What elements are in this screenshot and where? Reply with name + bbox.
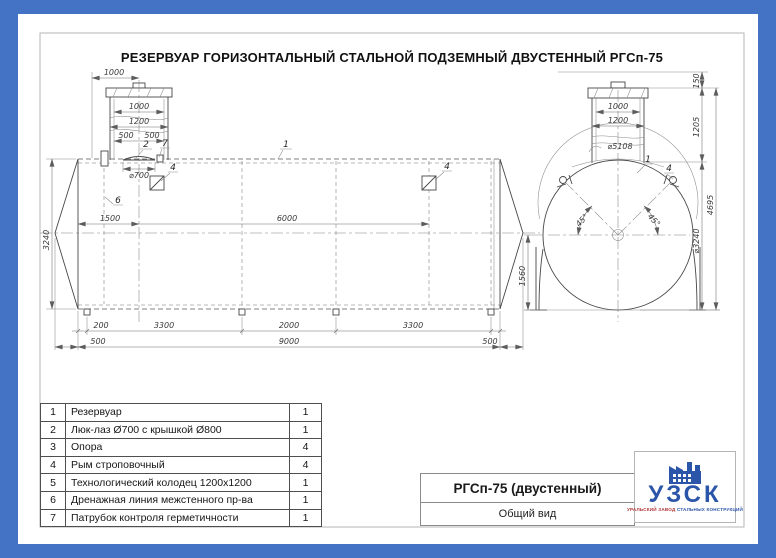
model-name: РГСп-75 (двустенный) xyxy=(421,474,634,503)
drawing-sheet-page: { "title": "РЕЗЕРВУАР ГОРИЗОНТАЛЬНЫЙ СТА… xyxy=(0,0,776,558)
dim-support-span-1: 3300 xyxy=(154,321,174,330)
dim-shell-diameter: ⌀3240 xyxy=(692,228,701,253)
svg-text:7: 7 xyxy=(162,139,168,149)
part-number: 5 xyxy=(41,474,66,492)
dim-end-to-well: 1500 xyxy=(100,214,120,223)
part-qty: 1 xyxy=(290,491,322,509)
callout-rym-2: 4 xyxy=(435,162,452,180)
logo-tagline-right: СТАЛЬНЫХ КОНСТРУКЦИЙ xyxy=(677,507,743,512)
dim-neck-depth: 1205 xyxy=(692,117,701,137)
side-view: 1000 1200 500 500 1000 ⌀700 3240 1500 60… xyxy=(40,68,540,350)
dim-arc-5108: ⌀5108 xyxy=(607,142,632,151)
table-row: 6 Дренажная линия межстенного пр-ва 1 xyxy=(41,491,322,509)
part-qty: 1 xyxy=(290,421,322,439)
uzsk-logo: УЗСК УРАЛЬСКИЙ ЗАВОД СТАЛЬНЫХ КОНСТРУКЦИ… xyxy=(634,451,736,523)
drain-pipe xyxy=(101,151,108,166)
part-name: Дренажная линия межстенного пр-ва xyxy=(66,491,290,509)
parts-table: 1 Резервуар 1 2 Люк-лаз Ø700 с крышкой Ø… xyxy=(40,403,322,527)
logo-tagline: УРАЛЬСКИЙ ЗАВОД СТАЛЬНЫХ КОНСТРУКЦИЙ xyxy=(627,507,743,512)
dim-well-outer: 1200 xyxy=(129,117,149,126)
table-row: 2 Люк-лаз Ø700 с крышкой Ø800 1 xyxy=(41,421,322,439)
part-qty: 4 xyxy=(290,439,322,457)
dim-cone-left: 500 xyxy=(90,337,105,346)
logo-tagline-left: УРАЛЬСКИЙ ЗАВОД xyxy=(627,507,676,512)
support-feet xyxy=(84,309,494,315)
dim-support-span-mid: 2000 xyxy=(279,321,299,330)
end-view: 45° 45° 1000 1200 ⌀5108 150 1205 ⌀3240 4… xyxy=(518,72,720,322)
part-qty: 1 xyxy=(290,509,322,527)
dim-cover-height: 150 xyxy=(692,73,701,88)
table-row: 3 Опора 4 xyxy=(41,439,322,457)
svg-text:4: 4 xyxy=(444,162,450,172)
part-name: Резервуар xyxy=(66,404,290,422)
title-block: РГСп-75 (двустенный) Общий вид xyxy=(420,473,635,526)
part-number: 7 xyxy=(41,509,66,527)
part-qty: 4 xyxy=(290,456,322,474)
part-name: Технологический колодец 1200х1200 xyxy=(66,474,290,492)
dim-well-inner: 1000 xyxy=(129,102,149,111)
svg-text:2: 2 xyxy=(143,140,149,150)
dim-shell-height: 3240 xyxy=(42,230,51,250)
dim-end-to-support: 200 xyxy=(93,321,108,330)
table-row: 5 Технологический колодец 1200х1200 1 xyxy=(41,474,322,492)
part-number: 6 xyxy=(41,491,66,509)
dim-total-height: 4695 xyxy=(706,195,715,215)
dim-between-ryms: 6000 xyxy=(277,214,297,223)
table-row: 7 Патрубок контроля герметичности 1 xyxy=(41,509,322,527)
part-number: 1 xyxy=(41,404,66,422)
callout-drain: 6 xyxy=(105,196,123,206)
table-row: 4 Рым строповочный 4 xyxy=(41,456,322,474)
lifting-lug xyxy=(150,176,164,190)
svg-text:6: 6 xyxy=(115,196,121,206)
table-row: 1 Резервуар 1 xyxy=(41,404,322,422)
lifting-lug xyxy=(664,175,679,187)
logo-text: УЗСК xyxy=(648,485,721,505)
part-name: Рым строповочный xyxy=(66,456,290,474)
svg-text:4: 4 xyxy=(170,163,176,173)
dim-hatch-diameter: ⌀700 xyxy=(129,171,149,180)
part-name: Патрубок контроля герметичности xyxy=(66,509,290,527)
dim-axis-to-base: 1560 xyxy=(518,266,527,286)
part-number: 3 xyxy=(41,439,66,457)
leak-control-nozzle xyxy=(157,155,163,162)
callout-hatch: 2 xyxy=(136,140,152,158)
dim-cylinder-length: 9000 xyxy=(279,337,299,346)
svg-text:4: 4 xyxy=(666,164,672,174)
dim-half-right: 500 xyxy=(144,131,159,140)
view-name: Общий вид xyxy=(421,503,634,525)
lifting-lug xyxy=(557,175,572,187)
svg-text:1: 1 xyxy=(645,155,651,165)
dim-top-offset: 1000 xyxy=(104,68,124,77)
dim-support-span-2: 3300 xyxy=(403,321,423,330)
part-number: 4 xyxy=(41,456,66,474)
part-number: 2 xyxy=(41,421,66,439)
svg-text:1: 1 xyxy=(283,140,289,150)
callout-tank: 1 xyxy=(278,140,292,159)
dim-half-left: 500 xyxy=(118,131,133,140)
part-name: Люк-лаз Ø700 с крышкой Ø800 xyxy=(66,421,290,439)
dim-angle-right: 45° xyxy=(646,212,662,229)
dim-neck-outer: 1200 xyxy=(608,116,628,125)
dim-cone-right: 500 xyxy=(482,337,497,346)
part-name: Опора xyxy=(66,439,290,457)
part-qty: 1 xyxy=(290,474,322,492)
dim-neck-inner: 1000 xyxy=(608,102,628,111)
lifting-lug xyxy=(422,176,436,190)
part-qty: 1 xyxy=(290,404,322,422)
dim-angle-left: 45° xyxy=(574,212,590,229)
callout-tank: 1 xyxy=(637,155,653,173)
